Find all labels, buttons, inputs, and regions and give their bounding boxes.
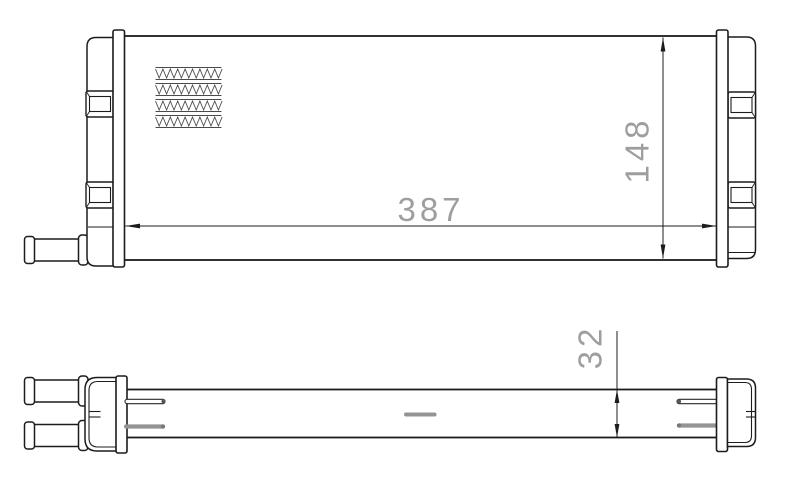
dim-width-label: 387 bbox=[397, 191, 464, 228]
bottom-outlet-pipe bbox=[25, 421, 89, 451]
dim-depth-label: 32 bbox=[572, 325, 609, 370]
front-left-clip-bottom bbox=[86, 182, 114, 208]
dim-height-label: 148 bbox=[619, 116, 656, 183]
bottom-left-end-plate bbox=[116, 376, 127, 453]
technical-drawing: 148 387 bbox=[0, 0, 800, 495]
front-right-tank bbox=[728, 37, 756, 259]
bottom-inlet-pipe bbox=[25, 376, 89, 406]
front-right-end-plate bbox=[717, 30, 729, 267]
front-right-clip-top bbox=[728, 92, 756, 118]
front-left-clip-top bbox=[86, 91, 114, 117]
front-view: 148 387 bbox=[25, 30, 756, 267]
front-inlet-pipe bbox=[25, 235, 89, 265]
front-left-tank bbox=[87, 38, 114, 267]
technical-drawing-canvas: 148 387 bbox=[0, 0, 800, 495]
front-right-clip-bottom bbox=[728, 182, 756, 208]
bottom-right-end-plate bbox=[717, 378, 728, 452]
bottom-view: 32 bbox=[25, 325, 756, 453]
bottom-left-tank bbox=[85, 378, 117, 452]
front-left-end-plate bbox=[113, 30, 125, 267]
